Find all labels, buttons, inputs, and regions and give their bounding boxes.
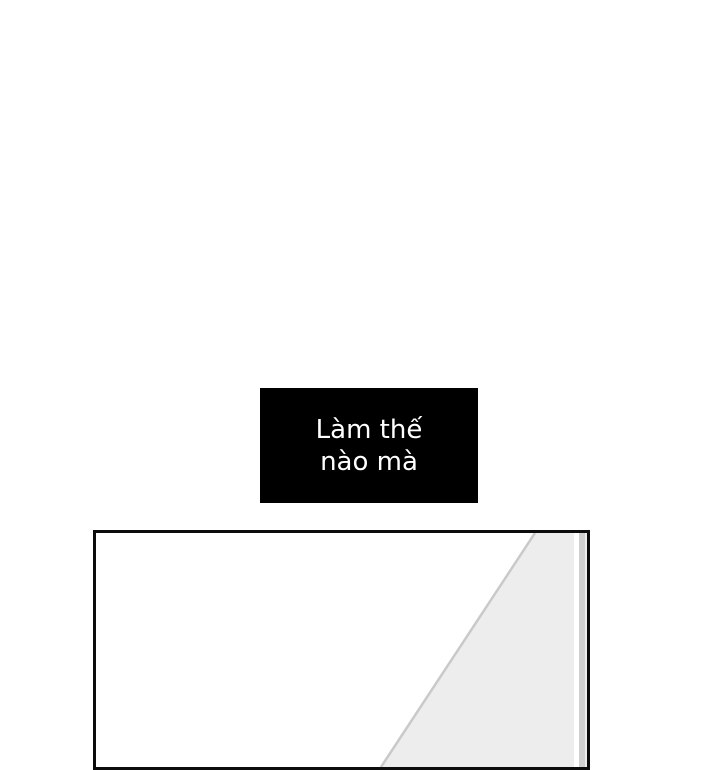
narration-box: Làm thế nào mà — [260, 388, 478, 503]
corner-shading-shape — [380, 533, 587, 767]
comic-page: Làm thế nào mà — [0, 0, 720, 659]
narration-text-line1: Làm thế — [316, 414, 423, 446]
edge-stripe-light — [585, 533, 587, 767]
edge-stripe-gray — [579, 533, 585, 767]
comic-panel — [93, 530, 590, 770]
edge-stripe-white — [574, 533, 579, 767]
narration-text-line2: nào mà — [320, 446, 418, 478]
panel-artwork — [96, 533, 587, 767]
